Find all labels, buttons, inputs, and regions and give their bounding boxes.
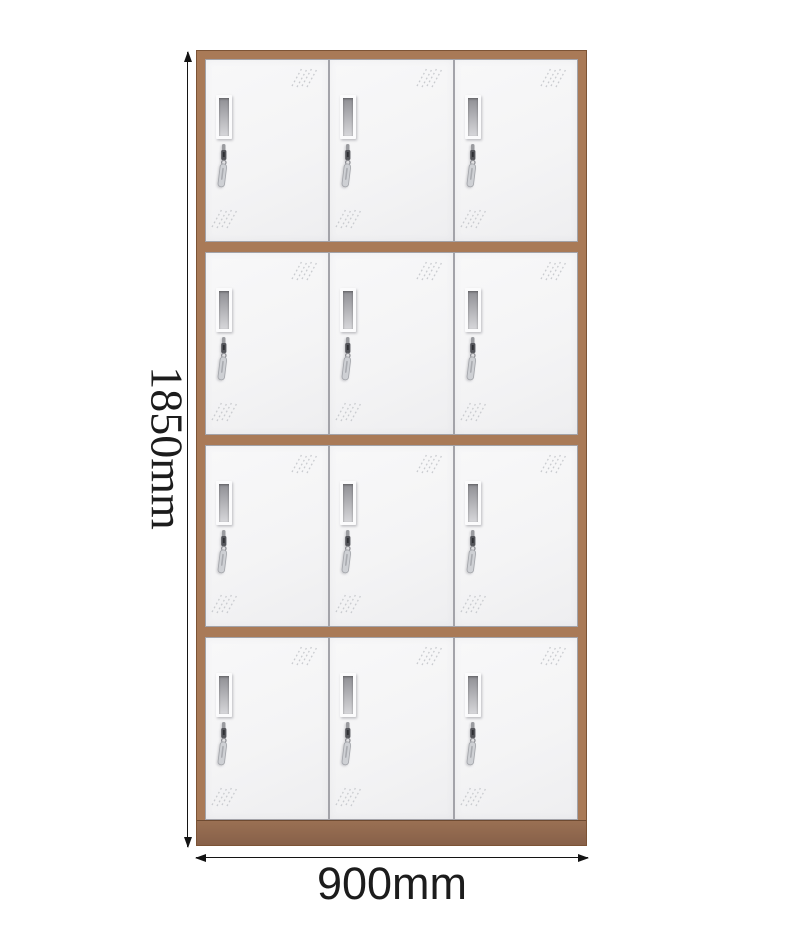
reflection-hatch-icon xyxy=(211,591,238,619)
reflection-hatch-icon xyxy=(211,206,238,229)
reflection-hatch-icon xyxy=(291,451,318,479)
locker-door xyxy=(329,445,453,628)
lock-key-icon xyxy=(340,337,356,383)
vent-slot-icon xyxy=(465,673,481,717)
reflection-hatch-icon xyxy=(335,399,362,422)
reflection-hatch-icon xyxy=(540,65,567,93)
reflection-hatch-icon xyxy=(416,451,443,479)
lock-key-icon xyxy=(216,337,232,383)
reflection-hatch-icon xyxy=(335,206,362,234)
reflection-hatch-icon xyxy=(291,643,318,671)
locker-cabinet xyxy=(197,51,586,845)
lock-key-icon xyxy=(216,530,232,576)
reflection-hatch-icon xyxy=(335,784,362,812)
lock-key-icon xyxy=(216,144,232,190)
locker-door xyxy=(329,252,453,435)
reflection-hatch-icon xyxy=(460,591,487,619)
lock-key-icon xyxy=(216,722,232,768)
reflection-hatch-icon xyxy=(540,643,567,671)
reflection-hatch-icon xyxy=(335,591,362,614)
reflection-hatch-icon xyxy=(416,65,443,93)
locker-door xyxy=(454,252,578,435)
vent-slot-icon xyxy=(216,288,232,332)
vent-slot-icon xyxy=(340,673,356,717)
arrow-down-icon xyxy=(184,837,192,848)
lock-key-icon xyxy=(465,337,481,383)
reflection-hatch-icon xyxy=(540,643,567,666)
arrow-left-icon xyxy=(195,854,206,862)
locker-row xyxy=(205,445,578,628)
lock-key-icon xyxy=(340,722,356,768)
reflection-hatch-icon xyxy=(540,65,567,88)
locker-grid xyxy=(205,59,578,820)
reflection-hatch-icon xyxy=(416,643,443,666)
lock-key-icon xyxy=(340,144,356,190)
reflection-hatch-icon xyxy=(211,399,238,427)
reflection-hatch-icon xyxy=(335,206,362,229)
reflection-hatch-icon xyxy=(416,258,443,281)
locker-row xyxy=(205,637,578,820)
vent-slot-icon xyxy=(216,481,232,525)
reflection-hatch-icon xyxy=(540,258,567,286)
vent-slot-icon xyxy=(216,95,232,139)
locker-door xyxy=(205,252,329,435)
cabinet-base xyxy=(197,820,586,845)
reflection-hatch-icon xyxy=(416,258,443,286)
locker-door xyxy=(205,637,329,820)
reflection-hatch-icon xyxy=(291,65,318,88)
reflection-hatch-icon xyxy=(335,399,362,427)
reflection-hatch-icon xyxy=(460,591,487,614)
lock-key-icon xyxy=(465,530,481,576)
reflection-hatch-icon xyxy=(416,643,443,671)
vent-slot-icon xyxy=(465,95,481,139)
reflection-hatch-icon xyxy=(540,258,567,281)
reflection-hatch-icon xyxy=(460,399,487,422)
vent-slot-icon xyxy=(340,288,356,332)
reflection-hatch-icon xyxy=(211,591,238,614)
locker-door xyxy=(329,59,453,242)
reflection-hatch-icon xyxy=(460,784,487,812)
product-dimension-diagram: 1850mm 900mm xyxy=(0,0,790,925)
vent-slot-icon xyxy=(465,481,481,525)
locker-door xyxy=(205,59,329,242)
reflection-hatch-icon xyxy=(460,399,487,427)
vent-slot-icon xyxy=(465,288,481,332)
locker-door xyxy=(454,59,578,242)
locker-door xyxy=(454,445,578,628)
arrow-right-icon xyxy=(578,854,589,862)
reflection-hatch-icon xyxy=(335,591,362,619)
reflection-hatch-icon xyxy=(211,399,238,422)
lock-key-icon xyxy=(465,144,481,190)
vent-slot-icon xyxy=(340,95,356,139)
reflection-hatch-icon xyxy=(416,65,443,88)
reflection-hatch-icon xyxy=(211,784,238,812)
width-dimension-label: 900mm xyxy=(317,858,467,910)
vent-slot-icon xyxy=(340,481,356,525)
locker-row xyxy=(205,59,578,242)
reflection-hatch-icon xyxy=(460,784,487,807)
locker-row xyxy=(205,252,578,435)
locker-door xyxy=(205,445,329,628)
reflection-hatch-icon xyxy=(540,451,567,479)
reflection-hatch-icon xyxy=(291,258,318,281)
reflection-hatch-icon xyxy=(291,451,318,474)
locker-door xyxy=(329,637,453,820)
lock-key-icon xyxy=(465,722,481,768)
lock-key-icon xyxy=(340,530,356,576)
reflection-hatch-icon xyxy=(335,784,362,807)
reflection-hatch-icon xyxy=(291,65,318,93)
reflection-hatch-icon xyxy=(540,451,567,474)
height-dimension-label: 1850mm xyxy=(141,366,194,530)
reflection-hatch-icon xyxy=(416,451,443,474)
locker-door xyxy=(454,637,578,820)
reflection-hatch-icon xyxy=(291,643,318,666)
reflection-hatch-icon xyxy=(460,206,487,234)
reflection-hatch-icon xyxy=(291,258,318,286)
reflection-hatch-icon xyxy=(211,784,238,807)
reflection-hatch-icon xyxy=(211,206,238,234)
reflection-hatch-icon xyxy=(460,206,487,229)
arrow-up-icon xyxy=(184,51,192,62)
vent-slot-icon xyxy=(216,673,232,717)
